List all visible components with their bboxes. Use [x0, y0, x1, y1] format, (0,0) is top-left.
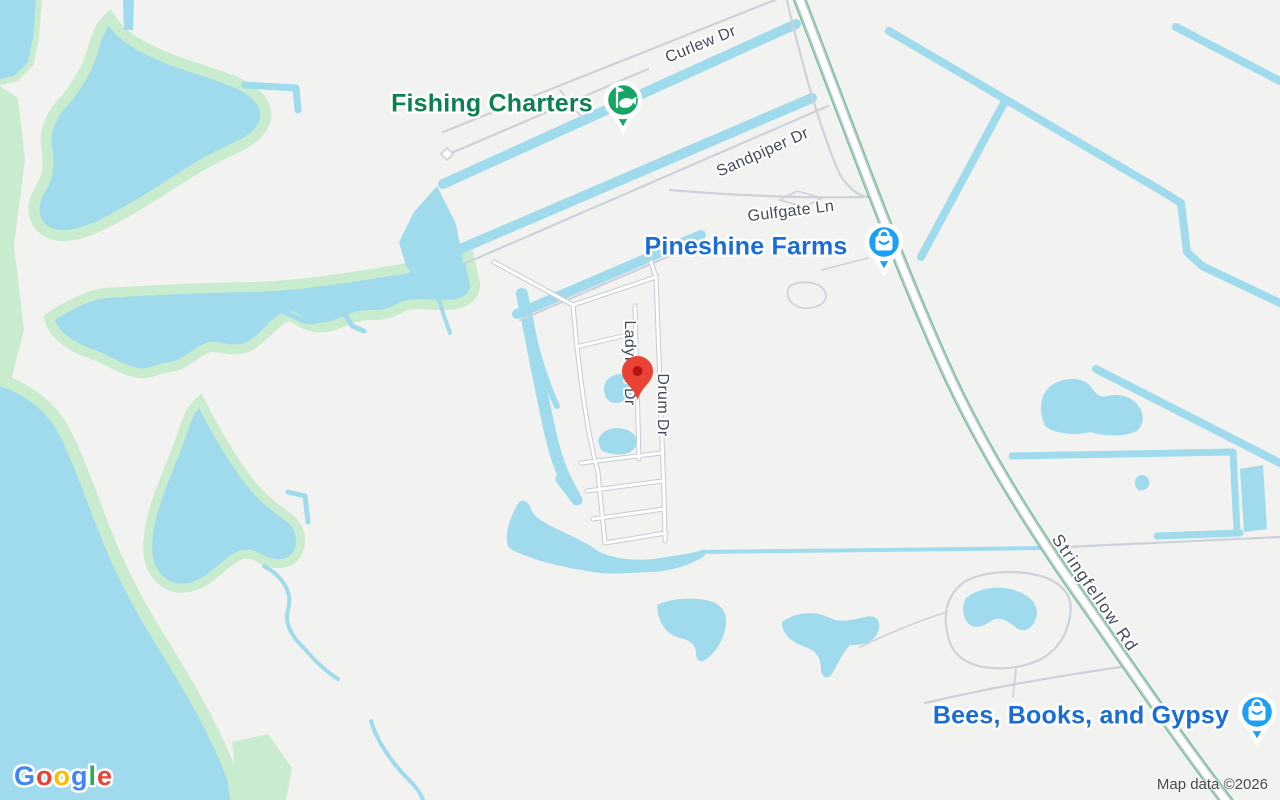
poi-label-pineshine-farms[interactable]: Pineshine Farms: [644, 235, 847, 260]
logo-letter: o: [36, 761, 54, 791]
google-logo[interactable]: Google: [14, 763, 113, 790]
logo-letter: G: [14, 761, 36, 791]
street-label-drum-dr: Drum Dr: [654, 373, 670, 436]
logo-letter: e: [97, 761, 113, 791]
map-canvas[interactable]: Curlew Dr Sandpiper Dr Gulfgate Ln Ladyf…: [0, 0, 1280, 800]
logo-letter: g: [71, 761, 89, 791]
logo-letter: o: [54, 761, 72, 791]
poi-label-fishing-charters[interactable]: Fishing Charters: [391, 92, 593, 117]
logo-letter: l: [89, 761, 98, 791]
poi-pin-bees-books-and-gypsy[interactable]: [1231, 686, 1280, 746]
dropped-pin-marker[interactable]: [622, 356, 653, 400]
poi-pin-pineshine-farms[interactable]: [858, 216, 910, 276]
poi-label-bees-books-and-gypsy[interactable]: Bees, Books, and Gypsy: [933, 704, 1229, 729]
map-data-attribution: Map data ©2026: [1157, 777, 1268, 792]
poi-pin-fishing-charters[interactable]: [597, 74, 649, 134]
